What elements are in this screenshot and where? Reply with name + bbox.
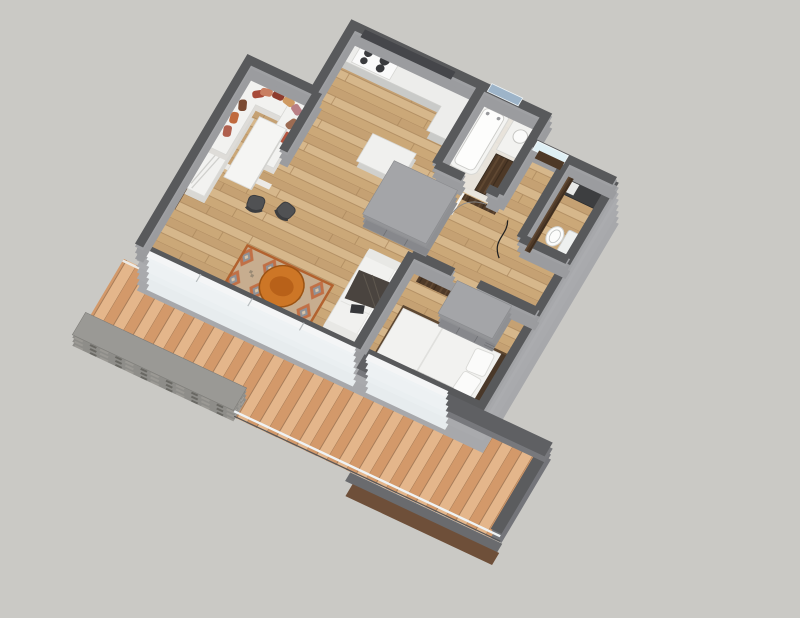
- pillow: [238, 99, 247, 111]
- laptop: [350, 304, 365, 314]
- floor-plan-3d-viewport[interactable]: [0, 0, 800, 618]
- floor-plan-3d-render[interactable]: [0, 0, 800, 618]
